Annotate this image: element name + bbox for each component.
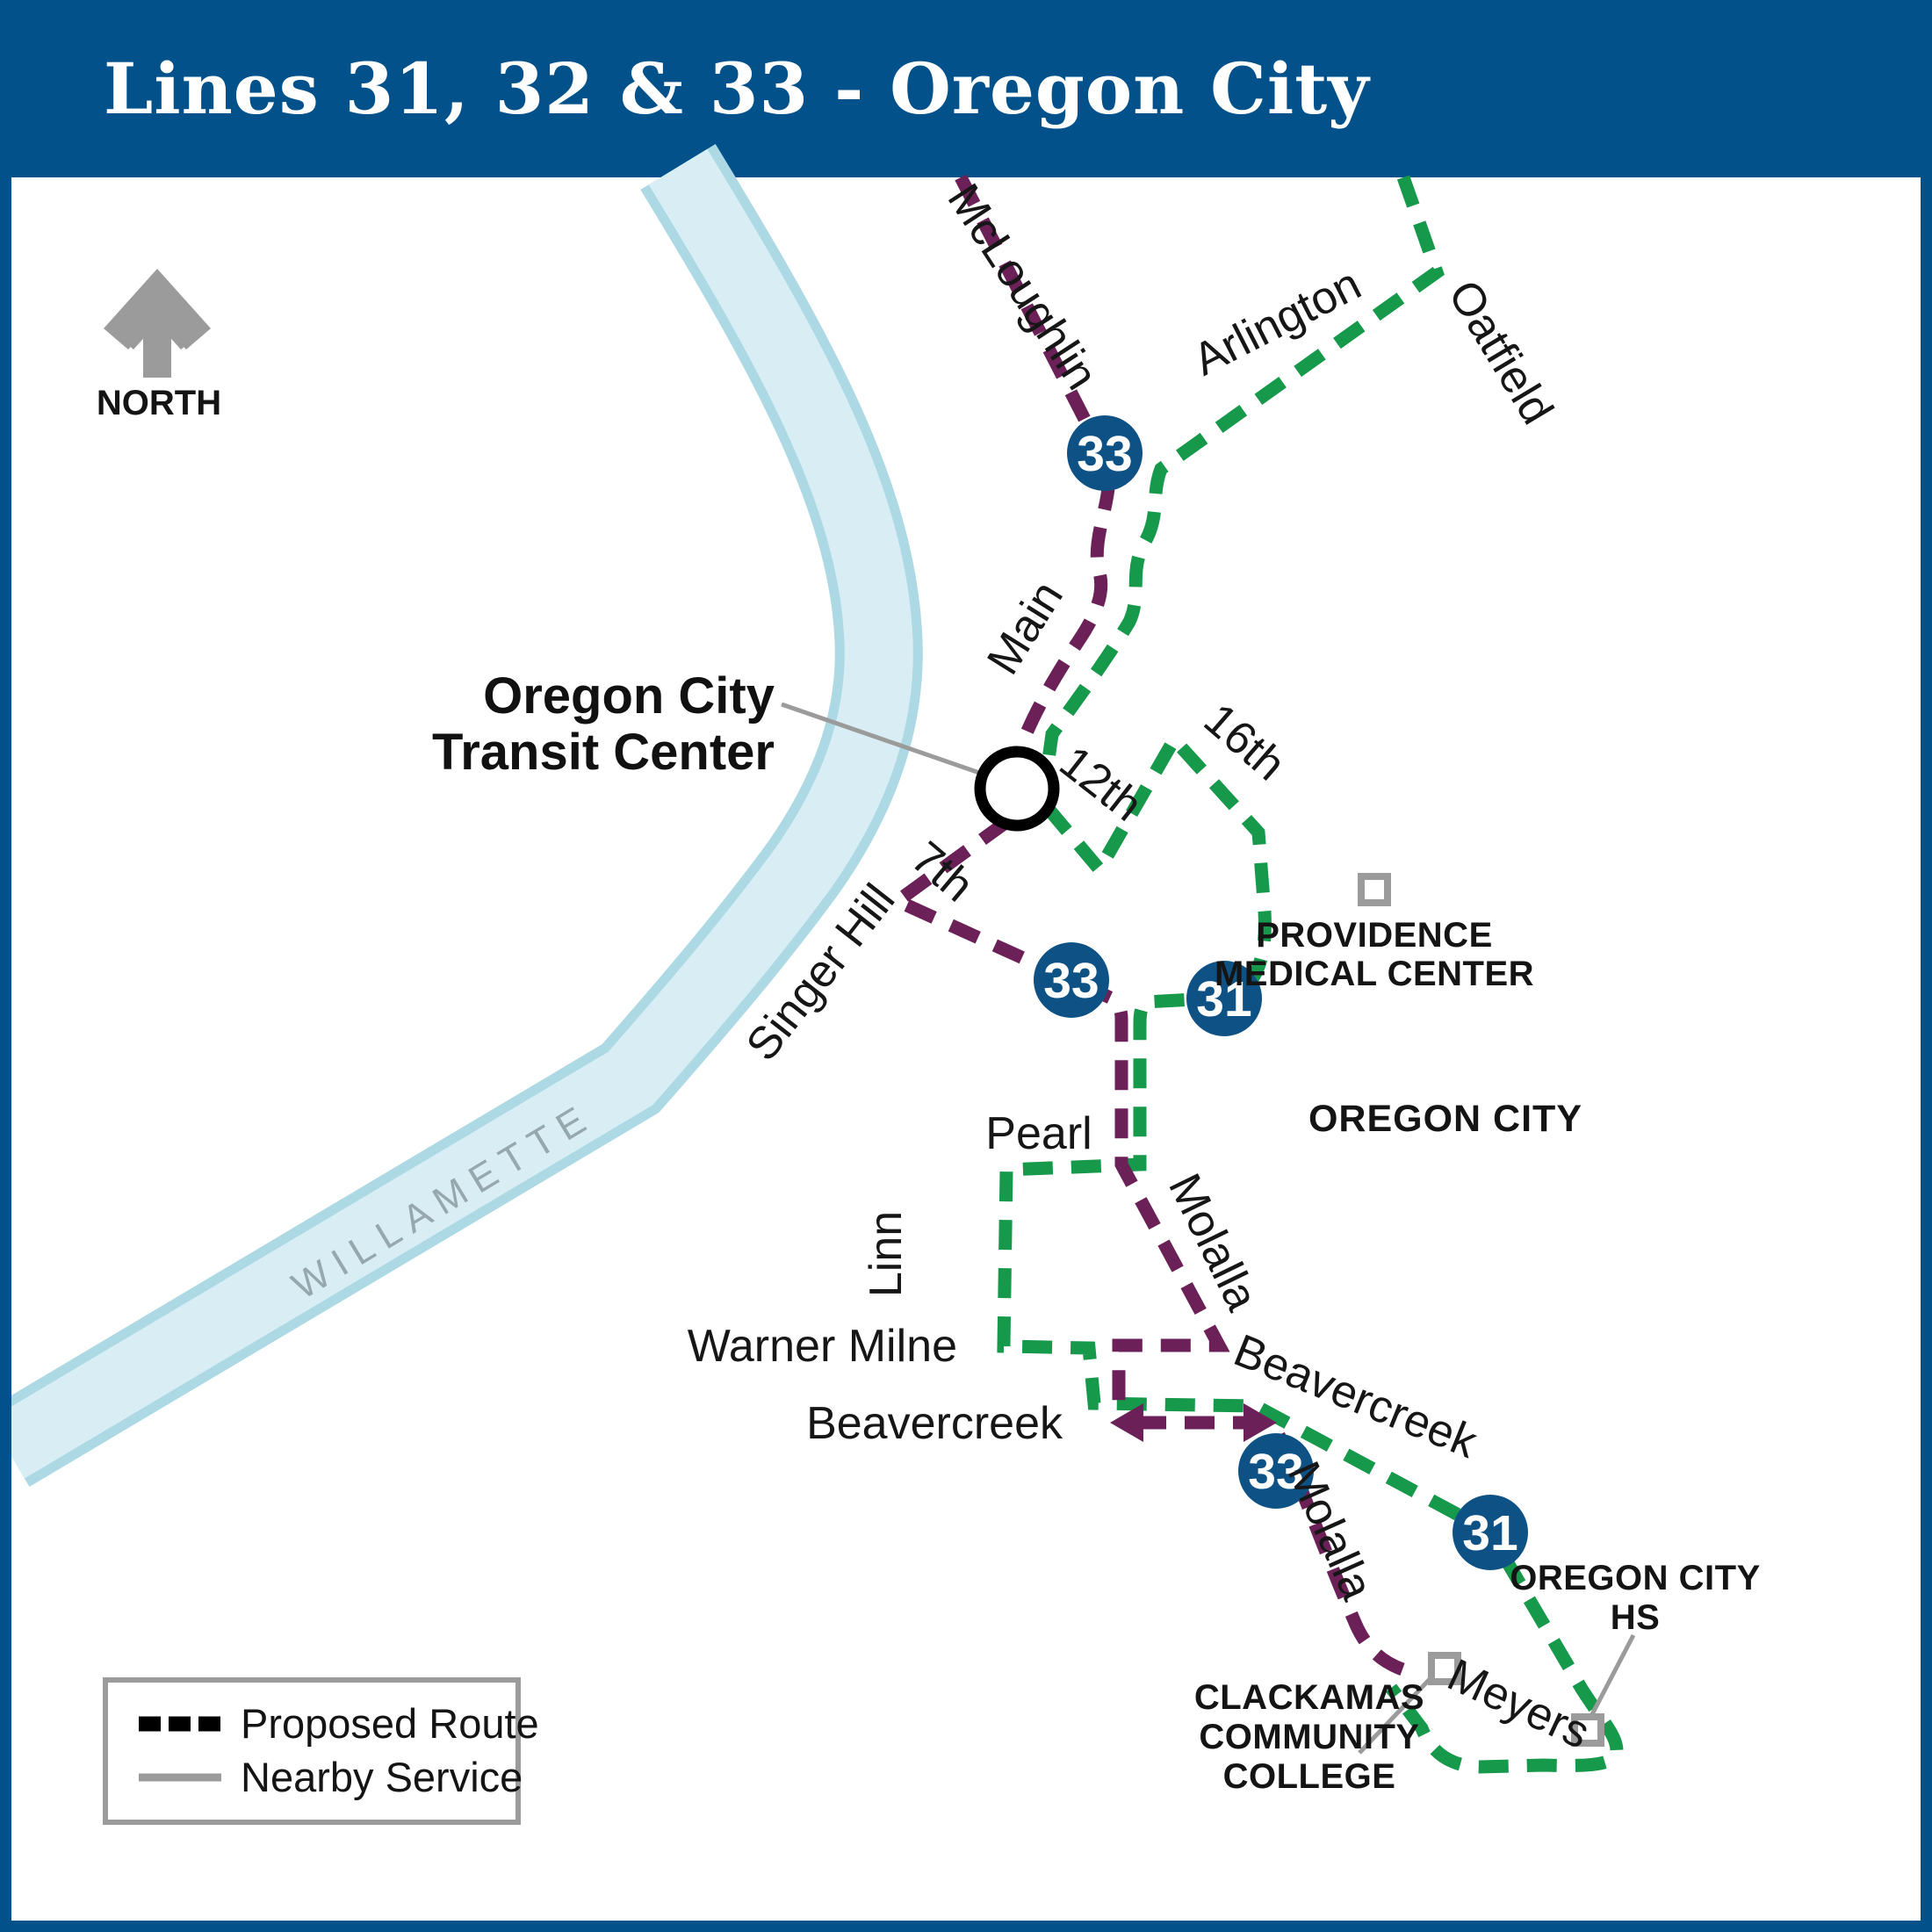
river-edge (7, 167, 879, 1449)
svg-text:31: 31 (1462, 1505, 1517, 1561)
route-31-12th-16th-loop (1004, 739, 1617, 1767)
transit-center-label-line1: Oregon City (483, 667, 775, 724)
willamette-river: WILLAMETTE (7, 167, 879, 1449)
street-label-arlington: Arlington (1186, 258, 1369, 386)
transit-center-marker (980, 752, 1054, 825)
street-label-linn: Linn (861, 1211, 912, 1297)
street-label-7th: 7th (902, 833, 984, 912)
ccc-label-line3: COLLEGE (1223, 1757, 1396, 1796)
hs-label-line1: OREGON CITY (1510, 1559, 1761, 1597)
oregon-city-label: OREGON CITY (1308, 1098, 1582, 1140)
north-arrow-icon (104, 269, 211, 378)
street-label-12th: 12th (1050, 737, 1151, 832)
providence-label-line1: PROVIDENCE (1256, 916, 1493, 955)
legend: Proposed Route Nearby Service (105, 1680, 539, 1822)
street-label-molalla-lower: Molalla (1278, 1454, 1383, 1607)
map-page: Lines 31, 32 & 33 - Oregon City WILLAMET… (0, 0, 1932, 1932)
north-indicator: NORTH (97, 269, 221, 422)
svg-text:33: 33 (1043, 953, 1099, 1009)
legend-proposed-route-label: Proposed Route (241, 1700, 539, 1747)
street-label-molalla-upper: Molalla (1158, 1166, 1267, 1319)
legend-nearby-service-label: Nearby Service (241, 1754, 523, 1800)
street-label-warner-milne: Warner Milne (688, 1321, 957, 1372)
street-label-meyers: Meyers (1440, 1649, 1597, 1759)
river-label: WILLAMETTE (285, 1094, 602, 1308)
hs-label-line2: HS (1611, 1598, 1661, 1637)
badge-33-mcloughlin: 33 (1067, 415, 1143, 491)
street-label-16th: 16th (1194, 694, 1294, 790)
providence-label-line2: MEDICAL CENTER (1215, 955, 1534, 993)
street-label-mcloughlin: McLoughlin (938, 175, 1107, 399)
svg-text:33: 33 (1077, 426, 1132, 482)
north-label: NORTH (97, 384, 221, 422)
ccc-label-line2: COMMUNITY (1199, 1718, 1419, 1756)
badge-33-7th: 33 (1034, 942, 1109, 1018)
street-label-oatfield: Oatfield (1438, 271, 1563, 432)
street-label-pearl: Pearl (985, 1108, 1092, 1159)
providence-square-icon (1361, 876, 1388, 903)
street-label-beavercreek-west: Beavercreek (806, 1398, 1063, 1449)
transit-center-label-line2: Transit Center (432, 724, 775, 781)
map-border (5, 5, 1927, 1927)
ccc-label-line1: CLACKAMAS (1194, 1678, 1424, 1717)
transit-map: WILLAMETTE NORTH (0, 0, 1932, 1932)
hs-callout-line (1591, 1635, 1633, 1716)
landmark-labels: Oregon City Transit Center PROVIDENCE ME… (432, 667, 1761, 1796)
